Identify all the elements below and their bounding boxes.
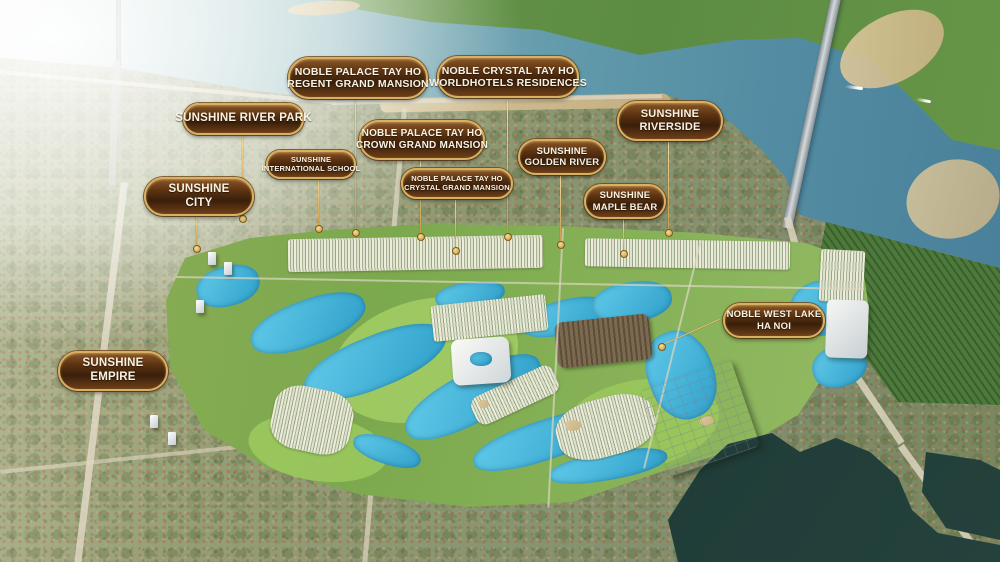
leader-line xyxy=(668,137,669,232)
badge-label: GOLDEN RIVER xyxy=(525,157,600,168)
pin-dot xyxy=(557,241,565,249)
badge-label: MAPLE BEAR xyxy=(593,202,658,213)
tower-building xyxy=(150,415,158,428)
badge-sunshine-city[interactable]: SUNSHINE CITY xyxy=(144,177,254,216)
pin-dot xyxy=(504,233,512,241)
resort-building xyxy=(825,299,869,358)
badge-sunshine-golden-river[interactable]: SUNSHINE GOLDEN RIVER xyxy=(518,139,606,175)
pin-dot xyxy=(352,229,360,237)
badge-label: SUNSHINE xyxy=(641,108,699,121)
villa-rows xyxy=(819,249,866,303)
leader-line xyxy=(507,94,508,236)
badge-noble-crystal-worldhotels[interactable]: NOBLE CRYSTAL TAY HO WORLDHOTELS RESIDEN… xyxy=(437,56,579,98)
pin-dot xyxy=(417,233,425,241)
badge-label: SUNSHINE xyxy=(82,357,143,371)
leader-line xyxy=(455,195,456,250)
pin-dot xyxy=(452,247,460,255)
badge-label: EMPIRE xyxy=(90,371,135,385)
badge-sunshine-riverside[interactable]: SUNSHINE RIVERSIDE xyxy=(617,101,723,141)
sand-bunker xyxy=(478,400,489,408)
badge-sunshine-international-school[interactable]: SUNSHINE INTERNATIONAL SCHOOL xyxy=(266,150,356,179)
badge-sunshine-empire[interactable]: SUNSHINE EMPIRE xyxy=(58,351,168,391)
badge-label: NOBLE CRYSTAL TAY HO xyxy=(442,65,575,77)
badge-label: HA NOI xyxy=(757,321,791,332)
badge-noble-west-lake[interactable]: NOBLE WEST LAKE HA NOI xyxy=(723,303,825,338)
badge-label: SUNSHINE xyxy=(168,183,229,197)
pin-dot xyxy=(620,250,628,258)
badge-label: NOBLE PALACE TAY HO xyxy=(362,128,483,140)
masterplan-map: NOBLE PALACE TAY HO REGENT GRAND MANSION… xyxy=(0,0,1000,562)
badge-noble-palace-crown[interactable]: NOBLE PALACE TAY HO CROWN GRAND MANSION xyxy=(359,120,485,160)
badge-sunshine-maple-bear[interactable]: SUNSHINE MAPLE BEAR xyxy=(584,184,666,219)
badge-label: CROWN GRAND MANSION xyxy=(356,140,488,152)
hotel-pool xyxy=(470,352,492,366)
pin-dot xyxy=(239,215,247,223)
badge-label: RIVERSIDE xyxy=(639,121,700,134)
thang-long-bridge xyxy=(116,0,121,66)
badge-sunshine-river-park[interactable]: SUNSHINE RIVER PARK xyxy=(183,103,304,135)
pin-dot xyxy=(315,225,323,233)
leader-line xyxy=(318,175,319,228)
leader-line xyxy=(196,212,197,248)
badge-label: SUNSHINE RIVER PARK xyxy=(175,112,312,126)
villa-rows xyxy=(585,238,790,270)
leader-line xyxy=(623,215,624,253)
badge-label: WORLDHOTELS RESIDENCES xyxy=(429,77,587,89)
badge-label: NOBLE PALACE TAY HO xyxy=(295,66,422,78)
badge-label: CITY xyxy=(186,197,213,211)
badge-label: CRYSTAL GRAND MANSION xyxy=(404,184,510,193)
pin-dot xyxy=(658,343,666,351)
badge-label: REGENT GRAND MANSION xyxy=(287,78,429,90)
badge-noble-palace-regent[interactable]: NOBLE PALACE TAY HO REGENT GRAND MANSION xyxy=(288,57,428,99)
tower-building xyxy=(168,432,176,445)
badge-label: INTERNATIONAL SCHOOL xyxy=(262,165,361,174)
tower-building xyxy=(224,262,232,275)
pin-dot xyxy=(665,229,673,237)
pin-dot xyxy=(193,245,201,253)
tower-building xyxy=(196,300,204,313)
tower-building xyxy=(208,252,216,265)
badge-label: NOBLE WEST LAKE xyxy=(727,309,822,320)
sand-bunker xyxy=(565,420,581,431)
leader-line xyxy=(560,171,561,244)
badge-noble-palace-crystal[interactable]: NOBLE PALACE TAY HO CRYSTAL GRAND MANSIO… xyxy=(401,168,513,199)
badge-label: SUNSHINE xyxy=(537,146,588,157)
badge-label: SUNSHINE xyxy=(600,190,651,201)
